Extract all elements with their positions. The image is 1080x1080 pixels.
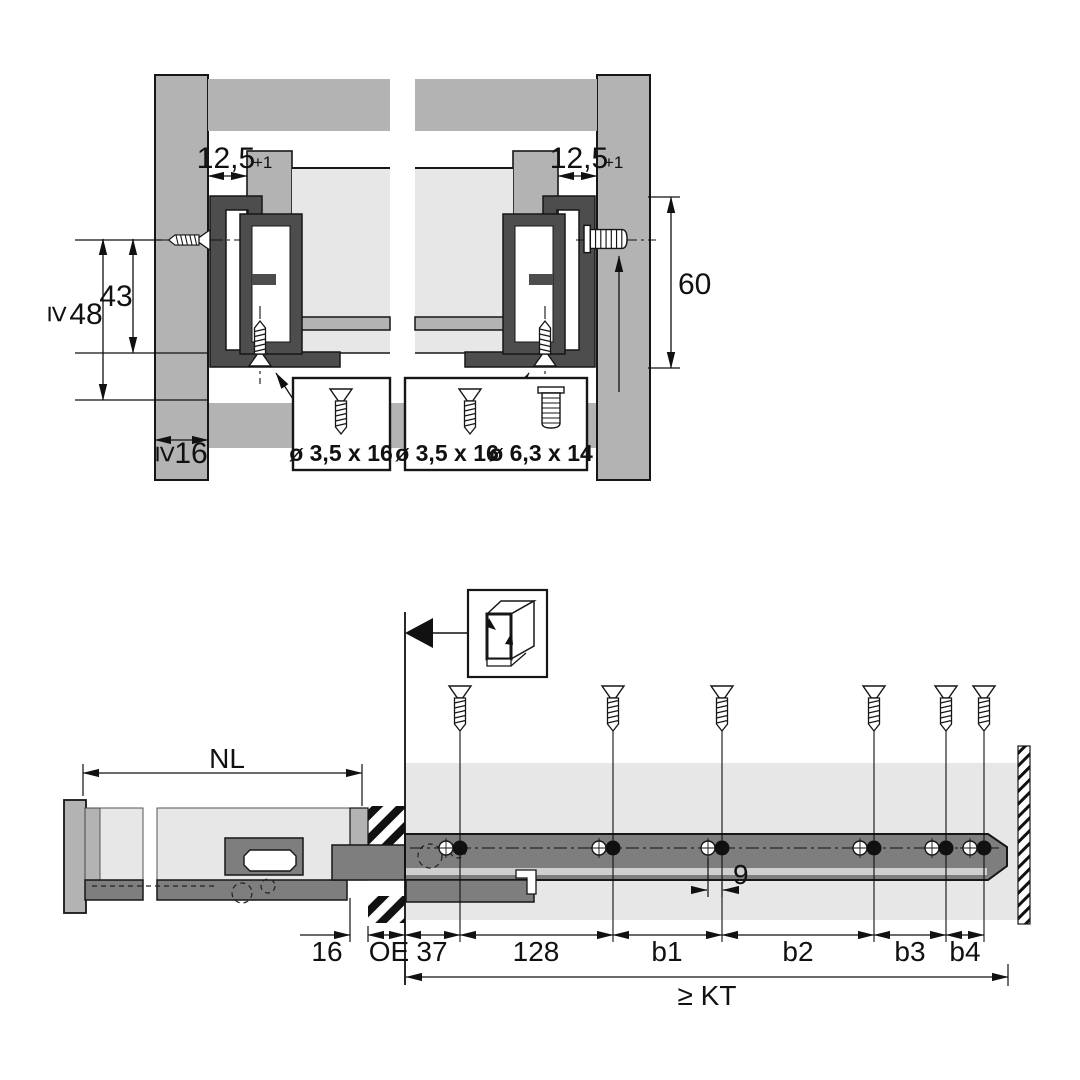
screw-size-label: ø 3,5 x 16 [395, 440, 499, 466]
front-edge-hatch-upper [368, 806, 405, 845]
front-direction-arrow-icon [405, 618, 433, 648]
gap-tolerance-right: +1 [604, 153, 623, 172]
front-edge-hatch-lower [368, 896, 405, 923]
mounting-screw-icon [711, 686, 733, 731]
drawer-front-inner-strip [85, 808, 100, 880]
screw-size-label: ø 6,3 x 14 [489, 440, 593, 466]
min-height-dimension: 48 [69, 298, 102, 331]
b3-dimension: b3 [894, 936, 925, 967]
bottom-figure-side-view: NL 16 OE 37 128 b1 b2 b3 b4 9 [64, 590, 1030, 1011]
b1-dimension: b1 [651, 936, 682, 967]
screw-spec-box-left: ø 3,5 x 16 [289, 378, 393, 470]
drawing-canvas: ø 3,5 x 16 ø 3,5 x 16 ø 6,3 x 14 12,5 +1… [0, 0, 1080, 1080]
panel-thickness-dimension: 16 [174, 437, 207, 470]
mounting-screw-icon [863, 686, 885, 731]
cabinet-icon-plinth [487, 659, 511, 666]
top-figure-cross-sections: ø 3,5 x 16 ø 3,5 x 16 ø 6,3 x 14 12,5 +1… [42, 75, 712, 480]
rail-front-bracket [406, 880, 534, 902]
mounting-screw-icon [449, 686, 471, 731]
drawer-rail-front [85, 880, 143, 900]
mounting-screw-icon [602, 686, 624, 731]
first-hole-dimension: 37 [416, 936, 447, 967]
gap-tolerance-left: +1 [253, 153, 272, 172]
euro-screw-icon [538, 387, 564, 428]
technical-drawing-page: ø 3,5 x 16 ø 3,5 x 16 ø 6,3 x 14 12,5 +1… [0, 0, 1080, 1080]
mounting-screw-icon [935, 686, 957, 731]
euro-fixing-screw-icon [584, 225, 627, 252]
screw-size-label: ø 3,5 x 16 [289, 440, 393, 466]
back-inset-dimension: 16 [311, 936, 342, 967]
second-hole-dimension: 128 [513, 936, 560, 967]
drawer-rail-rear [157, 880, 347, 900]
nominal-length-dimension: NL [209, 743, 245, 774]
screw-spec-box-right: ø 3,5 x 16 ø 6,3 x 14 [395, 378, 593, 470]
screw-height-dimension: 43 [99, 280, 132, 313]
rail-connector-arm [332, 845, 406, 880]
cabinet-back-panel-edge [1018, 746, 1030, 924]
gap-dimension-right: 12,5 [550, 142, 608, 175]
drawer-front-panel [64, 800, 86, 913]
cabinet-rail-channel [406, 868, 987, 875]
b2-dimension: b2 [782, 936, 813, 967]
rail-height-dimension: 60 [678, 268, 711, 301]
coupling-slot [244, 850, 296, 871]
mounting-screw-icon [973, 686, 995, 731]
pair-spacing-dimension: 9 [733, 859, 749, 890]
b4-dimension: b4 [949, 936, 980, 967]
oe-dimension: OE [369, 936, 409, 967]
cabinet-depth-dimension: ≥ KT [678, 980, 737, 1011]
cabinet-front-icon [468, 590, 547, 677]
drawer-body-front-section [100, 808, 143, 880]
gap-dimension-left: 12,5 [197, 142, 255, 175]
